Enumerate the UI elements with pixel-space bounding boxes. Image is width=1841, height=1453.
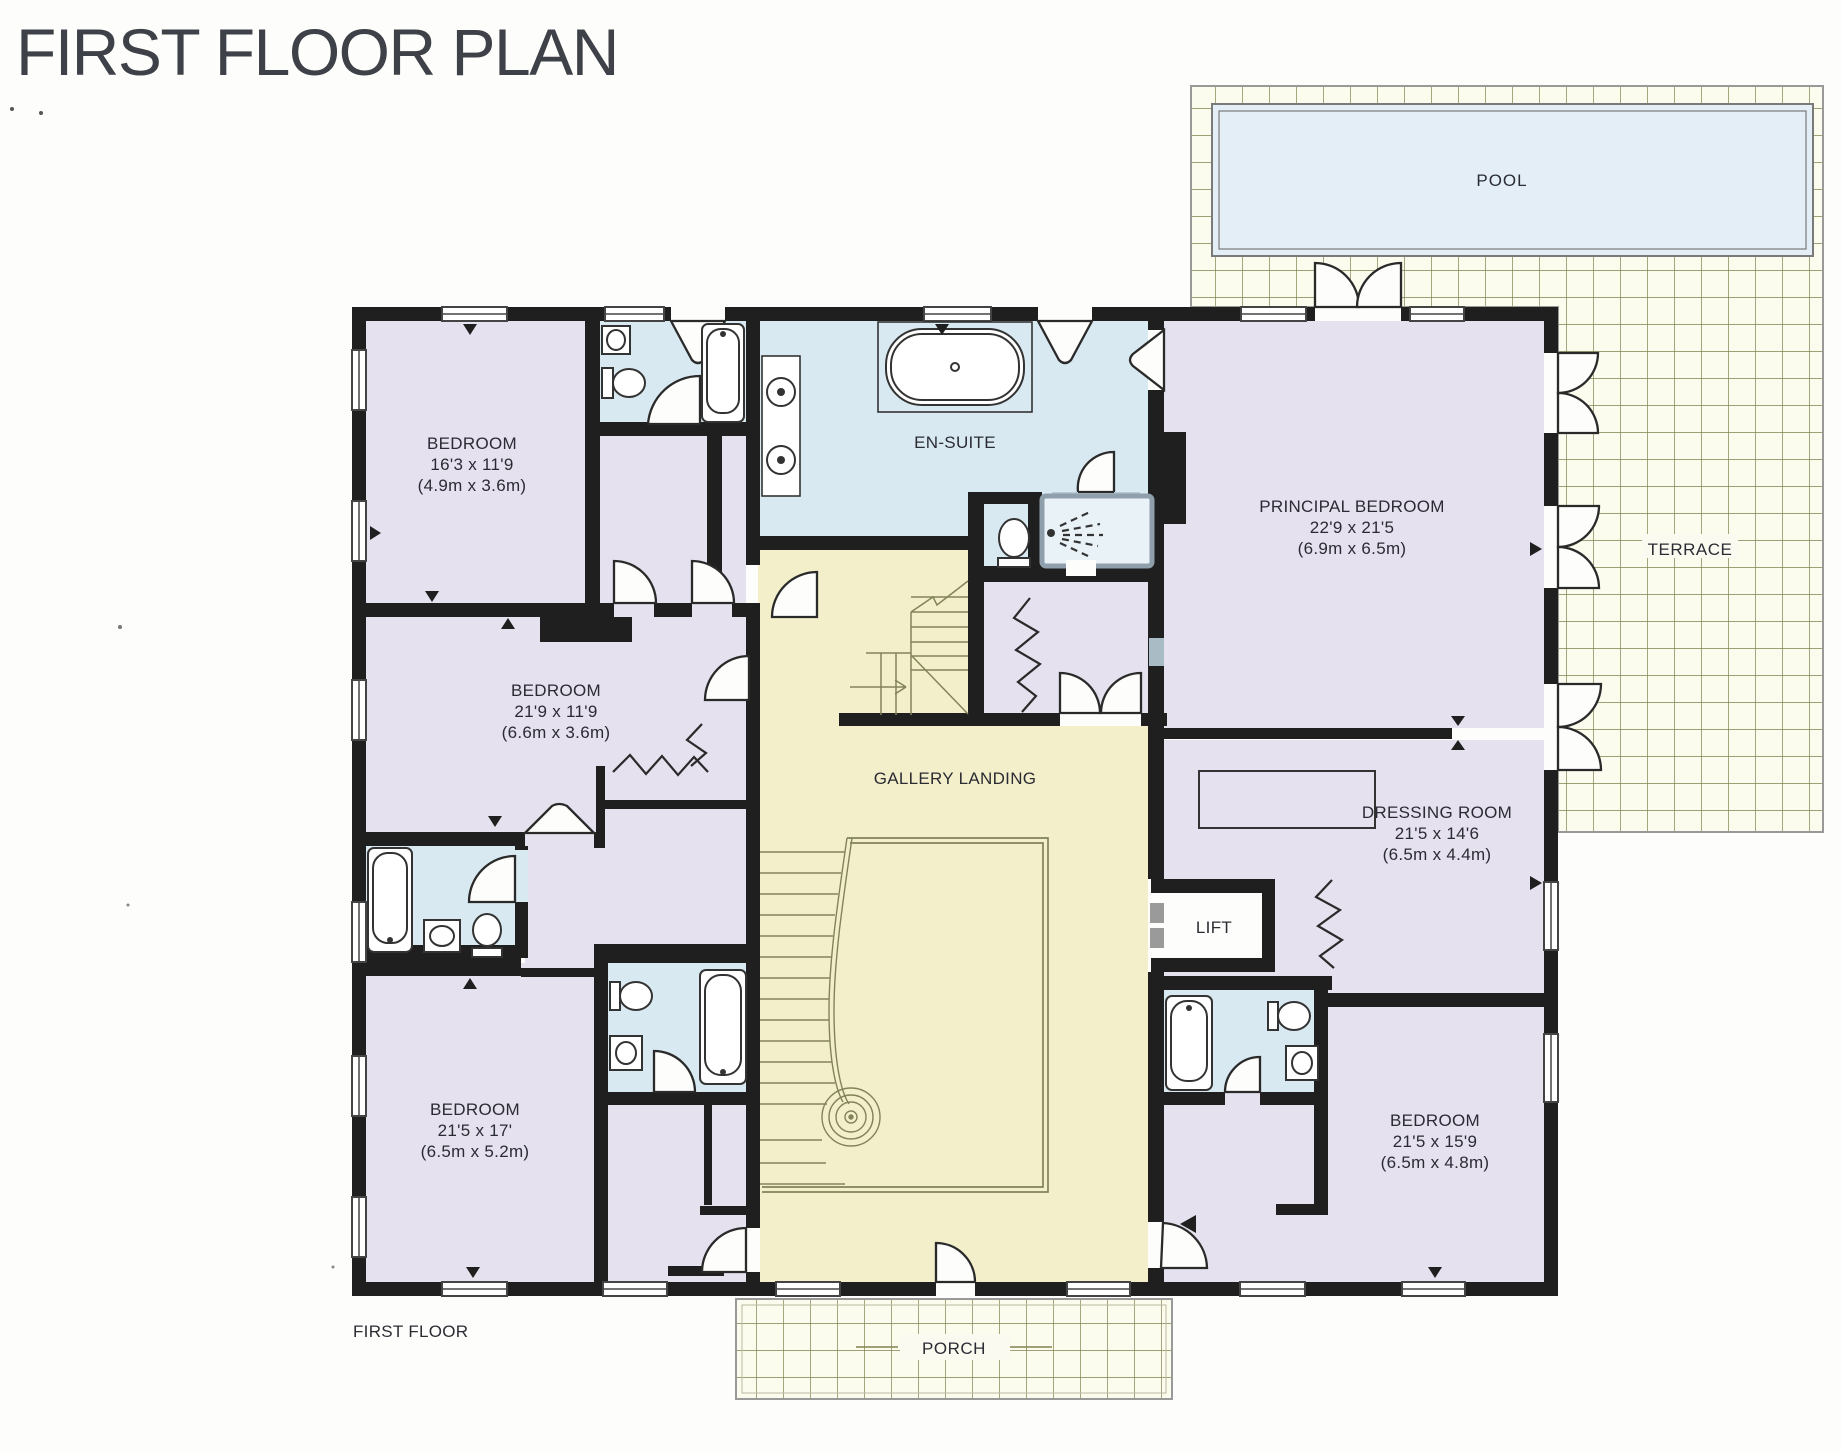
svg-text:DRESSING ROOM: DRESSING ROOM [1362, 803, 1512, 822]
svg-text:(6.5m x 5.2m): (6.5m x 5.2m) [421, 1142, 530, 1161]
svg-text:TERRACE: TERRACE [1648, 540, 1733, 559]
svg-text:(6.9m x 6.5m): (6.9m x 6.5m) [1298, 539, 1407, 558]
svg-text:(6.6m x 3.6m): (6.6m x 3.6m) [502, 723, 611, 742]
svg-text:PORCH: PORCH [922, 1339, 986, 1358]
svg-text:BEDROOM: BEDROOM [427, 434, 517, 453]
svg-text:BEDROOM: BEDROOM [1390, 1111, 1480, 1130]
svg-text:PRINCIPAL BEDROOM: PRINCIPAL BEDROOM [1259, 497, 1445, 516]
svg-text:21'5 x 17': 21'5 x 17' [438, 1121, 513, 1140]
svg-text:POOL: POOL [1476, 171, 1527, 190]
svg-text:FIRST FLOOR PLAN: FIRST FLOOR PLAN [16, 15, 618, 89]
svg-text:(6.5m x 4.8m): (6.5m x 4.8m) [1381, 1153, 1490, 1172]
svg-text:BEDROOM: BEDROOM [430, 1100, 520, 1119]
svg-text:21'5 x 15'9: 21'5 x 15'9 [1393, 1132, 1477, 1151]
svg-text:EN-SUITE: EN-SUITE [914, 433, 996, 452]
svg-text:21'5 x 14'6: 21'5 x 14'6 [1395, 824, 1479, 843]
svg-text:16'3 x 11'9: 16'3 x 11'9 [430, 455, 513, 474]
svg-text:FIRST FLOOR: FIRST FLOOR [353, 1322, 468, 1341]
svg-text:LIFT: LIFT [1196, 918, 1232, 937]
svg-text:22'9 x 21'5: 22'9 x 21'5 [1310, 518, 1394, 537]
svg-text:21'9 x 11'9: 21'9 x 11'9 [514, 702, 597, 721]
svg-text:GALLERY LANDING: GALLERY LANDING [874, 769, 1037, 788]
svg-text:(6.5m x 4.4m): (6.5m x 4.4m) [1383, 845, 1492, 864]
svg-text:BEDROOM: BEDROOM [511, 681, 601, 700]
svg-text:(4.9m x 3.6m): (4.9m x 3.6m) [418, 476, 527, 495]
